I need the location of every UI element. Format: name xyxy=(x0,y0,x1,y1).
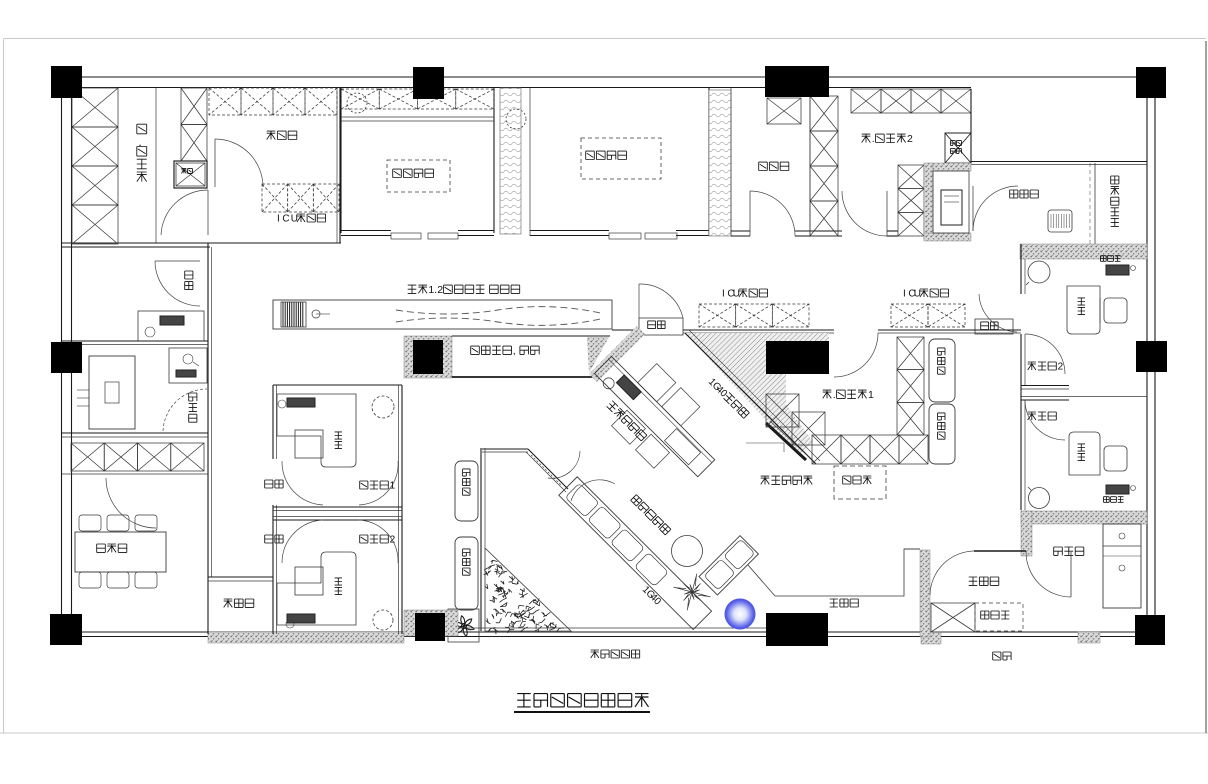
svg-text:2: 2 xyxy=(1058,362,1064,373)
svg-text:.: . xyxy=(872,133,875,145)
svg-text:I: I xyxy=(903,289,906,300)
svg-text:U: U xyxy=(733,289,740,300)
svg-text:I: I xyxy=(722,289,725,300)
svg-text:2: 2 xyxy=(437,284,443,296)
svg-text:,: , xyxy=(513,345,516,357)
svg-text:I: I xyxy=(277,214,280,225)
svg-text:1: 1 xyxy=(868,389,874,401)
svg-text:U: U xyxy=(291,214,298,225)
svg-text:1: 1 xyxy=(390,481,396,492)
svg-text:U: U xyxy=(914,289,921,300)
svg-text:.: . xyxy=(138,135,141,149)
svg-text:2: 2 xyxy=(907,133,913,145)
svg-text:C: C xyxy=(282,214,289,225)
svg-text:.: . xyxy=(833,389,836,401)
